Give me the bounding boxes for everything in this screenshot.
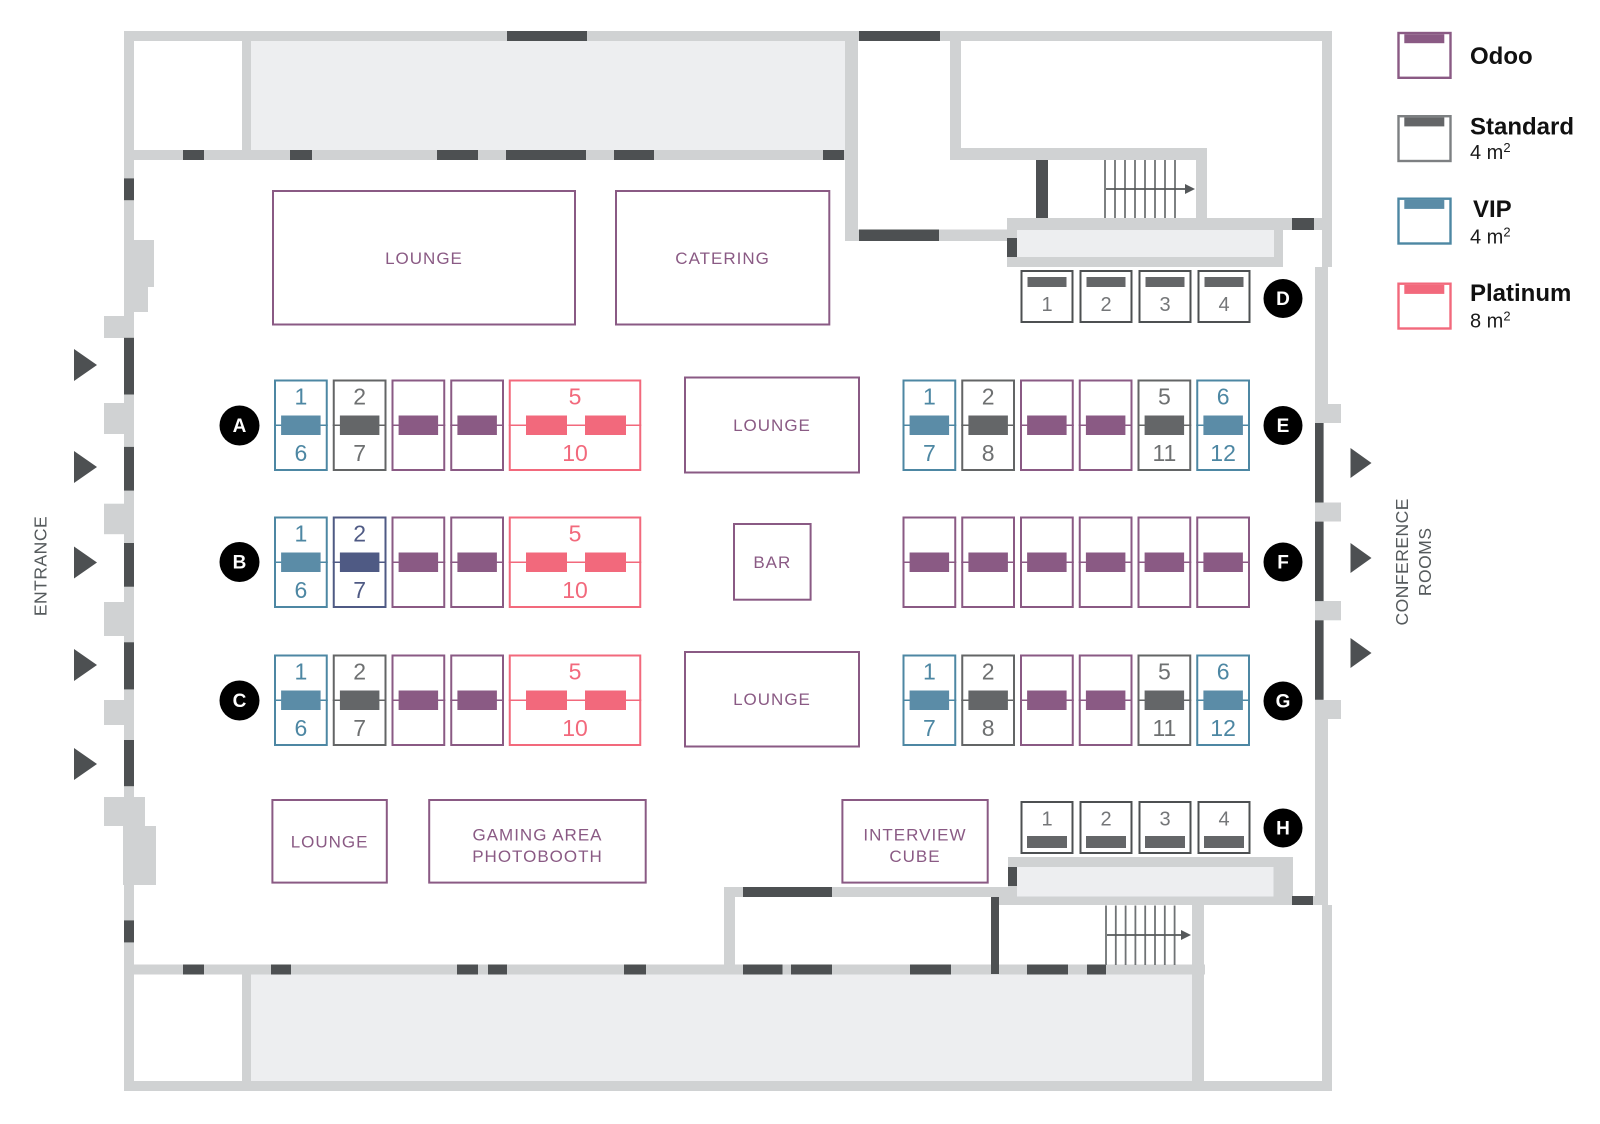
svg-text:E: E [1277, 416, 1290, 437]
svg-text:6: 6 [295, 440, 308, 466]
svg-text:5: 5 [1158, 384, 1171, 410]
svg-text:4 m2: 4 m2 [1470, 225, 1511, 249]
svg-text:7: 7 [923, 715, 936, 741]
svg-text:1: 1 [923, 384, 936, 410]
svg-text:5: 5 [569, 384, 582, 410]
svg-text:5: 5 [1158, 659, 1171, 685]
svg-text:LOUNGE: LOUNGE [733, 416, 811, 435]
svg-text:Platinum: Platinum [1470, 280, 1571, 307]
svg-text:2: 2 [982, 659, 995, 685]
svg-text:BAR: BAR [753, 553, 791, 572]
svg-text:7: 7 [353, 440, 366, 466]
svg-text:CONFERENCE: CONFERENCE [1392, 498, 1412, 626]
svg-text:5: 5 [569, 659, 582, 685]
svg-text:ENTRANCE: ENTRANCE [31, 516, 51, 616]
svg-text:2: 2 [1100, 809, 1111, 831]
svg-text:Odoo: Odoo [1470, 43, 1533, 70]
svg-text:1: 1 [1041, 809, 1052, 831]
svg-text:6: 6 [1217, 659, 1230, 685]
svg-text:1: 1 [1041, 294, 1052, 316]
svg-text:F: F [1277, 553, 1289, 574]
svg-text:ROOMS: ROOMS [1415, 527, 1435, 596]
svg-text:10: 10 [562, 577, 588, 603]
svg-text:VIP: VIP [1473, 196, 1512, 223]
svg-text:12: 12 [1210, 715, 1236, 741]
svg-text:5: 5 [569, 521, 582, 547]
svg-text:11: 11 [1152, 440, 1176, 466]
svg-text:7: 7 [923, 440, 936, 466]
svg-text:10: 10 [562, 440, 588, 466]
svg-text:3: 3 [1159, 809, 1170, 831]
svg-text:2: 2 [353, 521, 366, 547]
svg-text:GAMING AREA: GAMING AREA [472, 826, 602, 845]
svg-text:2: 2 [982, 384, 995, 410]
svg-text:CUBE: CUBE [889, 847, 940, 866]
svg-text:8: 8 [982, 715, 995, 741]
svg-text:Standard: Standard [1470, 114, 1574, 141]
svg-text:6: 6 [295, 715, 308, 741]
svg-text:H: H [1276, 819, 1290, 840]
svg-text:8: 8 [982, 440, 995, 466]
svg-text:B: B [233, 553, 247, 574]
svg-text:PHOTOBOOTH: PHOTOBOOTH [472, 847, 603, 866]
svg-text:1: 1 [295, 659, 308, 685]
svg-text:7: 7 [353, 577, 366, 603]
svg-text:2: 2 [353, 384, 366, 410]
svg-text:10: 10 [562, 715, 588, 741]
svg-text:1: 1 [923, 659, 936, 685]
svg-text:LOUNGE: LOUNGE [733, 690, 811, 709]
svg-text:D: D [1276, 289, 1290, 310]
svg-text:INTERVIEW: INTERVIEW [863, 826, 966, 845]
svg-text:4: 4 [1218, 809, 1229, 831]
svg-text:4 m2: 4 m2 [1470, 140, 1511, 164]
svg-text:C: C [233, 691, 247, 712]
svg-text:A: A [233, 416, 247, 437]
svg-text:2: 2 [353, 659, 366, 685]
svg-text:LOUNGE: LOUNGE [291, 832, 369, 851]
svg-text:12: 12 [1210, 440, 1236, 466]
svg-text:1: 1 [295, 384, 308, 410]
svg-text:2: 2 [1100, 294, 1111, 316]
svg-text:3: 3 [1159, 294, 1170, 316]
svg-text:1: 1 [295, 521, 308, 547]
svg-text:8 m2: 8 m2 [1470, 309, 1511, 333]
svg-text:LOUNGE: LOUNGE [385, 249, 463, 268]
svg-text:G: G [1276, 692, 1291, 713]
svg-text:7: 7 [353, 715, 366, 741]
svg-text:6: 6 [295, 577, 308, 603]
svg-text:6: 6 [1217, 384, 1230, 410]
svg-text:11: 11 [1152, 715, 1176, 741]
svg-text:4: 4 [1218, 294, 1229, 316]
svg-text:CATERING: CATERING [675, 249, 770, 268]
